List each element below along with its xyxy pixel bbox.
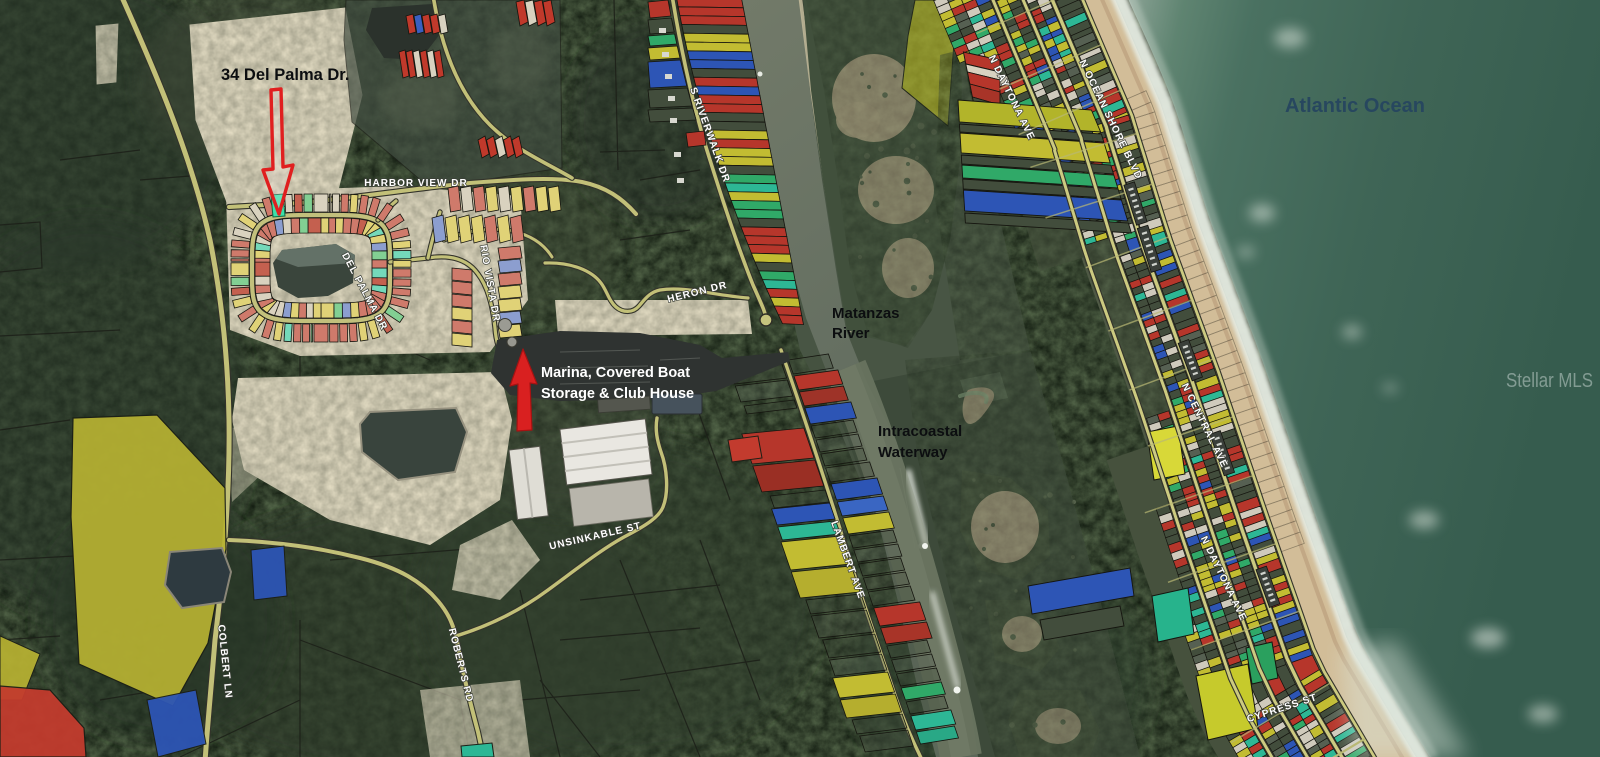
svg-text:Marina, Covered Boat: Marina, Covered Boat	[541, 365, 690, 381]
svg-text:HARBOR VIEW DR: HARBOR VIEW DR	[364, 178, 467, 189]
svg-text:Waterway: Waterway	[878, 444, 948, 461]
svg-text:Atlantic Ocean: Atlantic Ocean	[1285, 95, 1425, 117]
svg-text:Storage & Club House: Storage & Club House	[541, 386, 694, 402]
svg-text:34 Del Palma Dr.: 34 Del Palma Dr.	[221, 66, 349, 84]
svg-text:Matanzas: Matanzas	[832, 305, 900, 322]
svg-text:Stellar MLS: Stellar MLS	[1506, 370, 1593, 392]
svg-text:Intracoastal: Intracoastal	[878, 423, 962, 440]
svg-text:River: River	[832, 325, 870, 342]
